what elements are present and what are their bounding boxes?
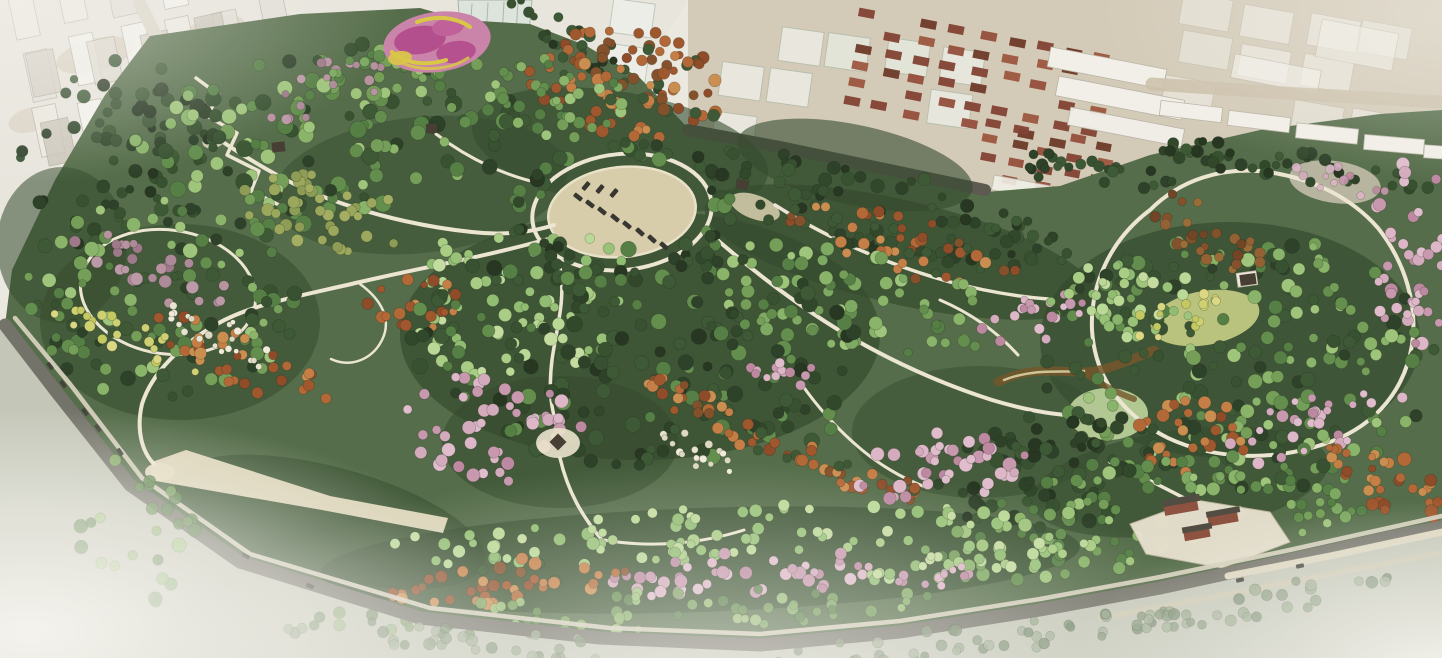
vignette-top-right <box>0 0 1442 658</box>
scene-svg <box>0 0 1442 658</box>
park-aerial-rendering <box>0 0 1442 658</box>
